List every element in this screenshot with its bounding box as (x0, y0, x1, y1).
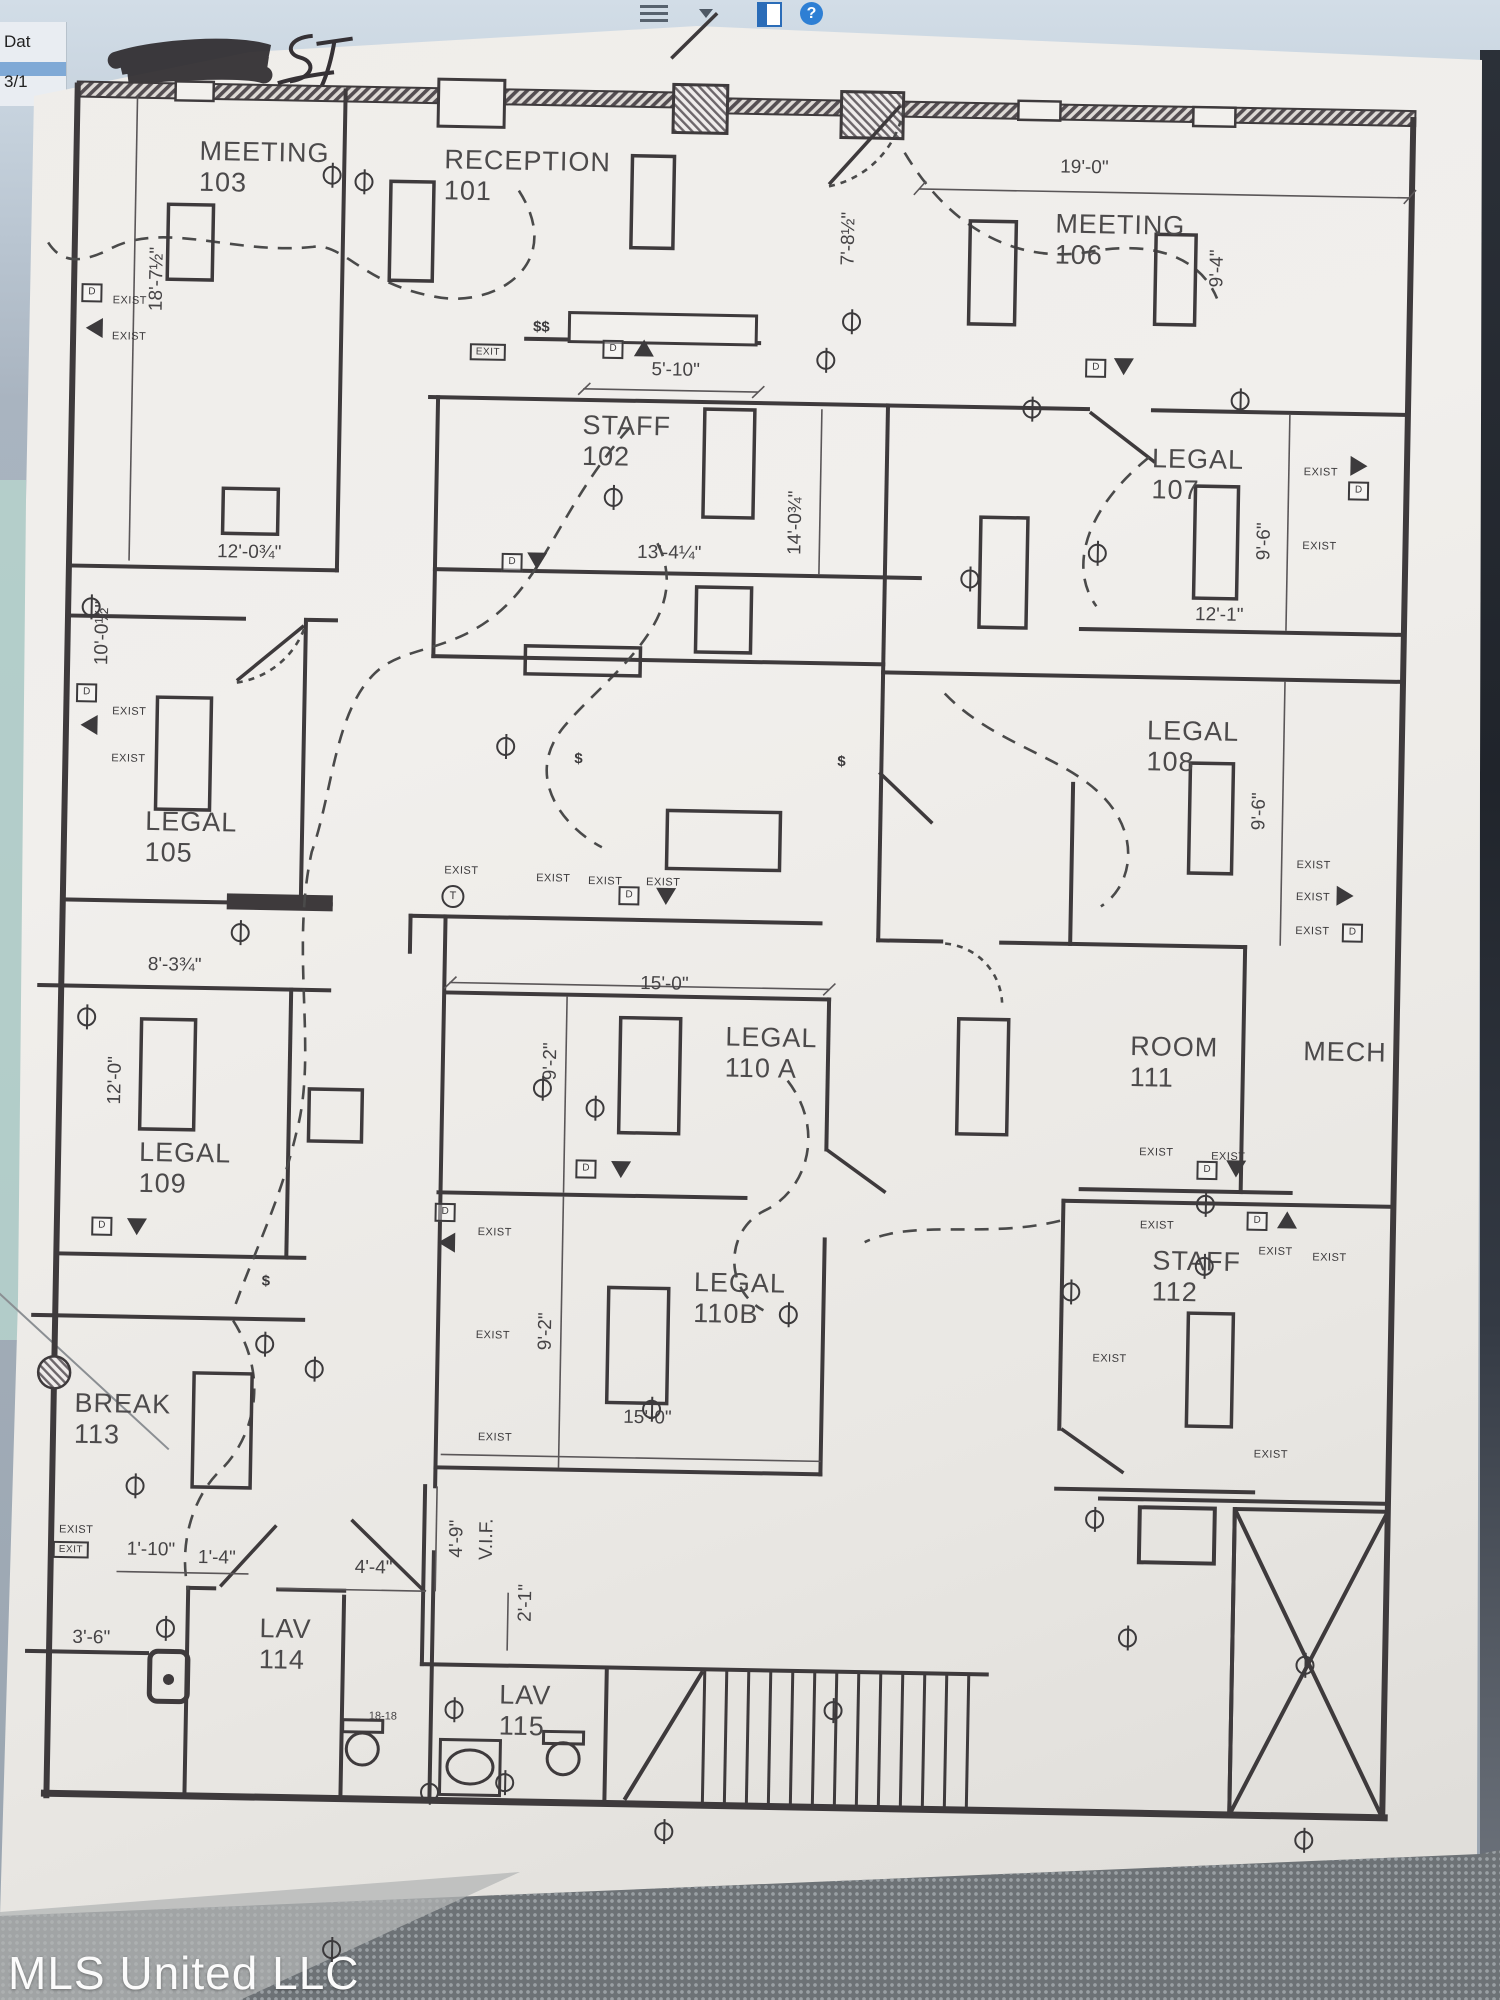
screenshot-root: Dat 3/1 ? MLS United LLC (0, 0, 1500, 2000)
floor-plan: MEETING103RECEPTION101MEETING106STAFF102… (0, 0, 1500, 2000)
stairs (624, 1668, 968, 1810)
floor-plan-linework (0, 0, 1500, 2000)
handwritten-note (278, 35, 353, 86)
interior-walls (24, 85, 1413, 1818)
plumbing-fixtures (31, 1356, 591, 1797)
door-leaves (220, 5, 1163, 1605)
elevator-shaft (1229, 1509, 1388, 1818)
